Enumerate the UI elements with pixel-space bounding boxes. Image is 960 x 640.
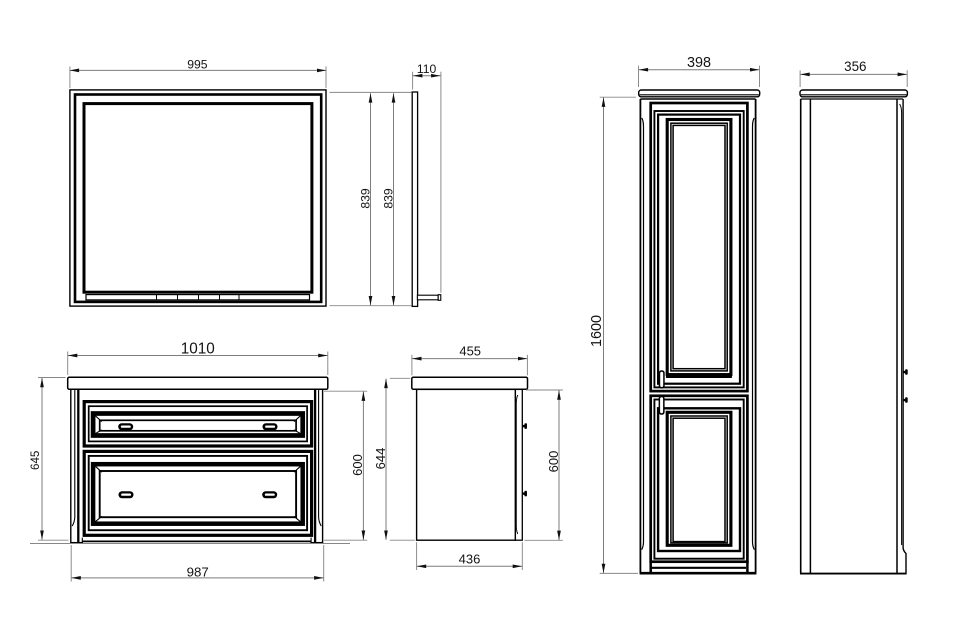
svg-text:600: 600 [350, 454, 365, 476]
svg-text:644: 644 [373, 448, 388, 470]
svg-text:839: 839 [381, 188, 395, 209]
svg-text:1010: 1010 [181, 341, 215, 358]
svg-text:1600: 1600 [589, 315, 605, 347]
svg-text:436: 436 [459, 551, 481, 566]
svg-text:600: 600 [546, 451, 561, 473]
svg-text:455: 455 [459, 344, 481, 359]
svg-text:839: 839 [358, 188, 372, 209]
svg-text:110: 110 [417, 62, 437, 76]
svg-text:398: 398 [687, 55, 711, 71]
svg-text:645: 645 [29, 451, 42, 470]
svg-text:987: 987 [187, 564, 209, 579]
svg-text:356: 356 [844, 59, 866, 74]
svg-text:995: 995 [187, 57, 208, 71]
